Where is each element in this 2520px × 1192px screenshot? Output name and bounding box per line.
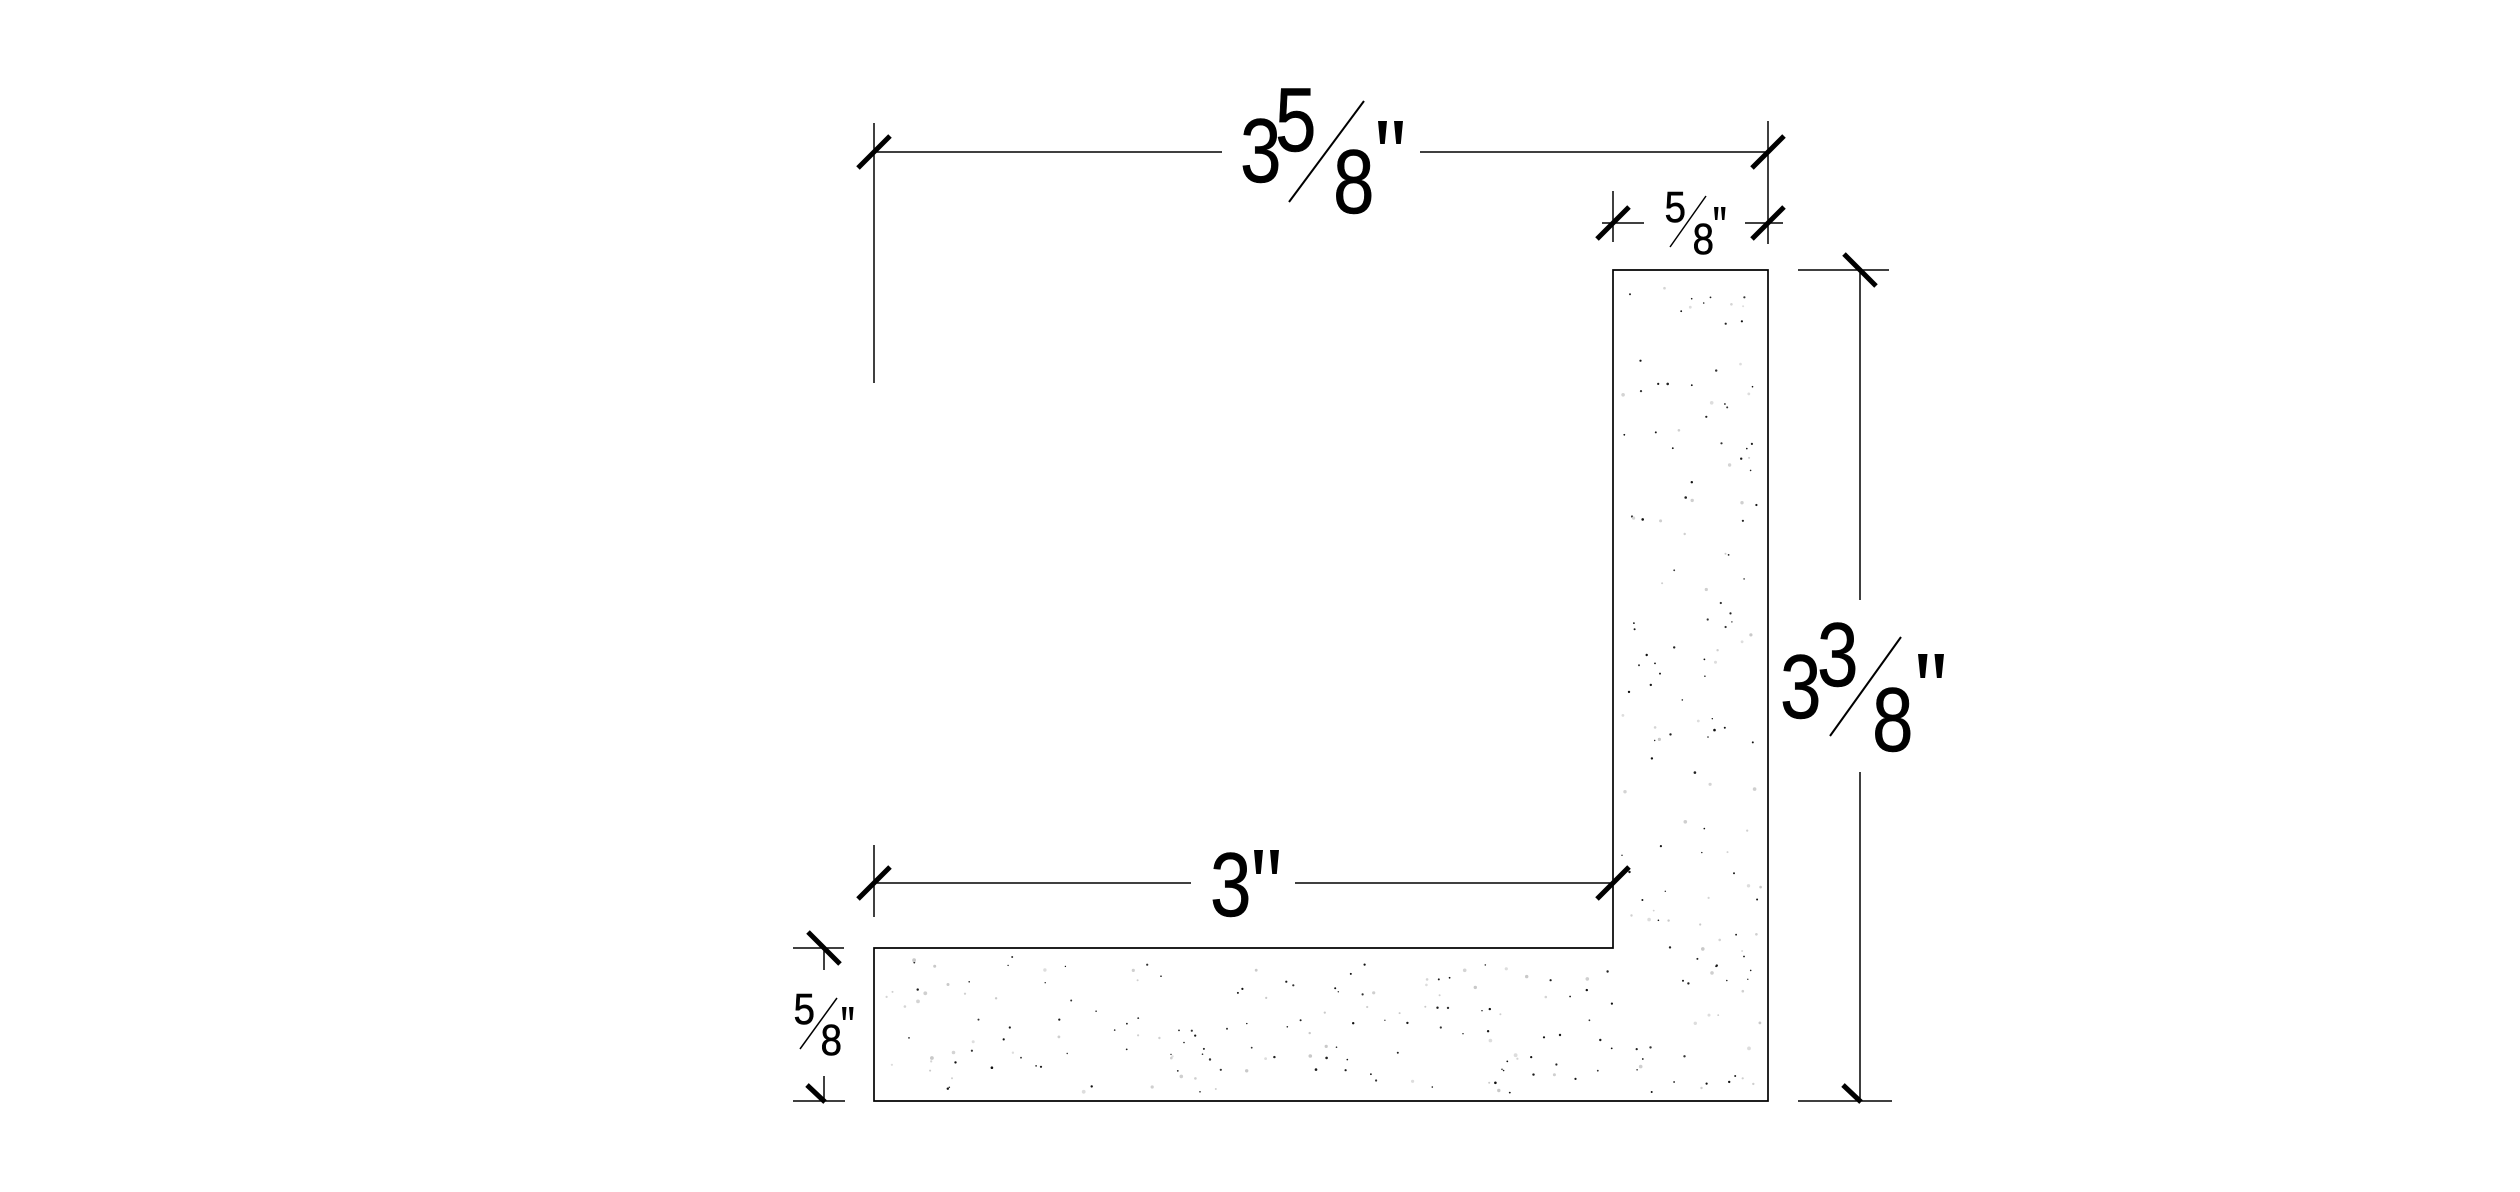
svg-text:8: 8: [1333, 131, 1375, 233]
svg-text:3: 3: [1817, 604, 1859, 706]
svg-text:5: 5: [794, 984, 816, 1034]
svg-text:8: 8: [1872, 669, 1914, 771]
svg-text:5: 5: [1275, 69, 1317, 171]
svg-text:8: 8: [1693, 214, 1715, 264]
svg-text:5: 5: [1665, 182, 1687, 232]
svg-text:3: 3: [1210, 834, 1252, 936]
svg-text:3: 3: [1780, 636, 1822, 738]
svg-text:8: 8: [821, 1015, 843, 1065]
